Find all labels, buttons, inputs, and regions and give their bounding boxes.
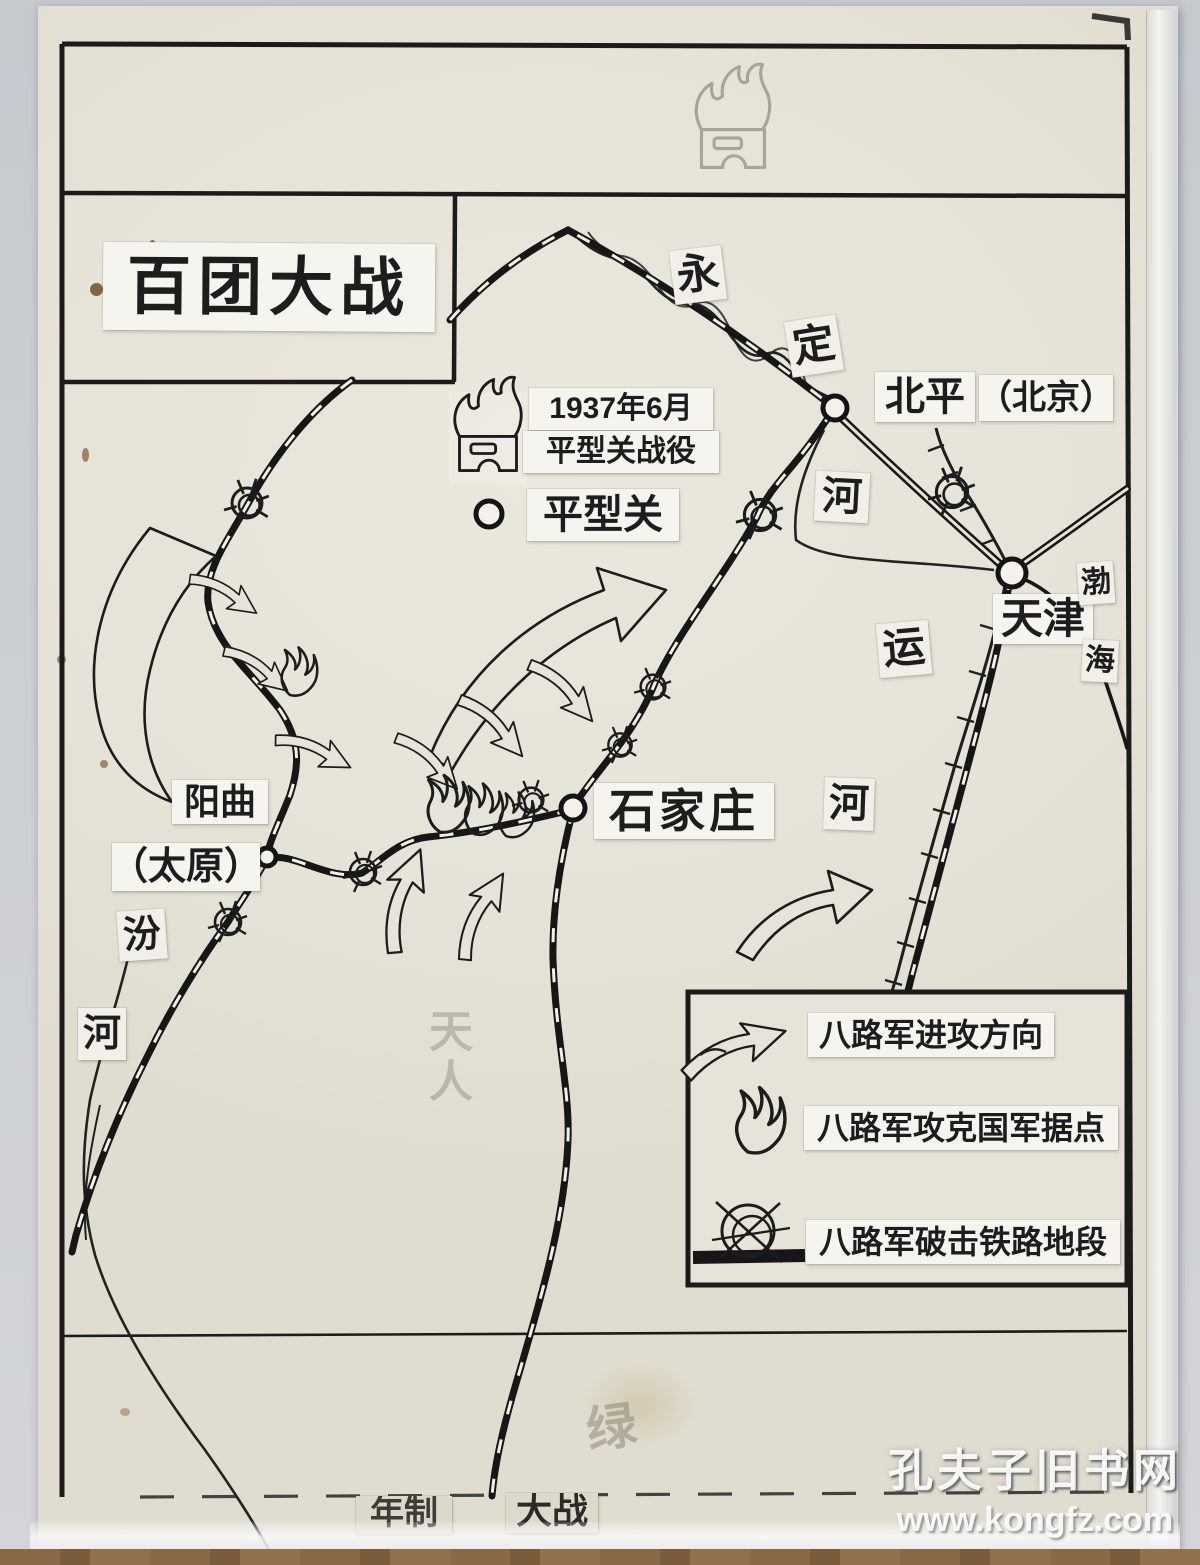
label-taiyuan-paren: （太原） — [112, 843, 260, 891]
label-bohai-2: 海 — [1081, 639, 1119, 683]
legend-label-attack: 八路军进攻方向 — [808, 1013, 1054, 1057]
legend-label-sabotage: 八路军破击铁路地段 — [806, 1220, 1120, 1264]
label-shijiazhuang: 石家庄 — [594, 783, 774, 839]
label-yongding-2: 定 — [784, 314, 844, 377]
watermark: 孔夫子旧书网 www.kongfz.com — [885, 1434, 1185, 1540]
map-title: 百团大战 — [103, 242, 436, 332]
pillbox-flame-icon — [449, 377, 527, 484]
pencil-note-center: 天人 — [414, 1008, 478, 1108]
label-yangqu: 阳曲 — [172, 780, 268, 824]
label-yongding-3: 河 — [814, 471, 871, 524]
tianjin-node — [998, 559, 1026, 587]
label-canal-2: 河 — [823, 777, 875, 831]
label-fenhe-2: 河 — [78, 1008, 126, 1060]
label-fenhe-1: 汾 — [116, 908, 167, 961]
pingxingguan-marker — [476, 501, 502, 527]
watermark-url: www.kongfz.com — [885, 1501, 1185, 1540]
battle-note-date: 1937年6月 — [529, 388, 713, 430]
railway-shijiazhuang-south — [492, 810, 573, 1496]
railway-north — [450, 230, 833, 407]
photo-background: 百团大战 1937年6月 平型关战役 平型关 北平 （北京） 天津 渤 海 永 … — [0, 0, 1200, 1565]
label-canal-1: 运 — [876, 620, 933, 678]
table-surface — [0, 1549, 1200, 1565]
watermark-site-name: 孔夫子旧书网 — [885, 1434, 1185, 1499]
label-bohai-1: 渤 — [1077, 561, 1116, 605]
label-yongding-1: 永 — [669, 245, 727, 305]
beiping-node — [823, 396, 847, 420]
attack-arrow-band-east — [737, 871, 872, 960]
pencil-pillbox-sketch — [696, 64, 769, 167]
label-pingxingguan: 平型关 — [527, 489, 679, 541]
label-beiping: 北平 — [875, 372, 975, 422]
label-beijing-paren: （北京） — [979, 375, 1113, 421]
pencil-note-lower: 绿 — [581, 1385, 641, 1463]
battle-note-name: 平型关战役 — [523, 431, 719, 473]
legend-label-stronghold: 八路军攻克国军据点 — [804, 1106, 1118, 1150]
shijiazhuang-node — [561, 796, 585, 820]
label-tianjin: 天津 — [993, 594, 1093, 644]
attack-arrow-band-west — [94, 528, 216, 802]
